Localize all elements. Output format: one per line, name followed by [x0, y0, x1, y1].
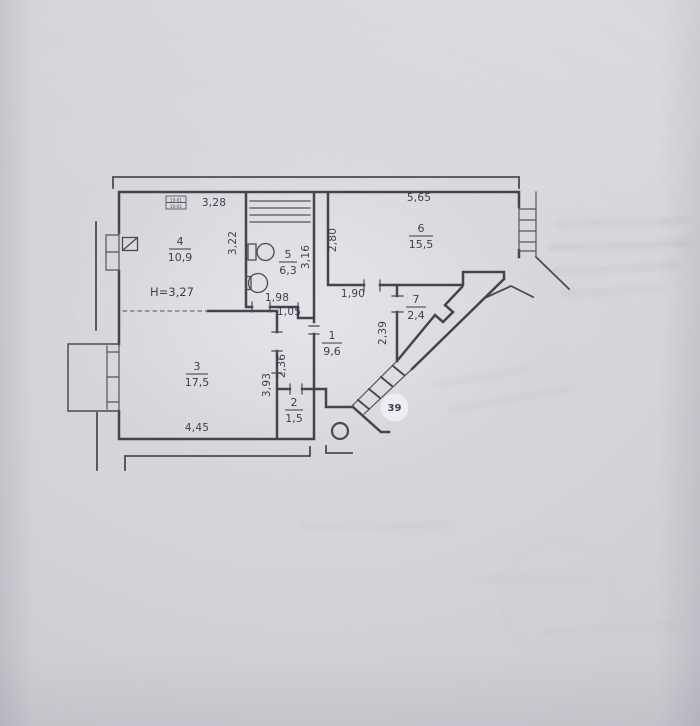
apartment-number-badge: 39 — [381, 394, 409, 422]
column-symbol — [332, 423, 348, 439]
dim-hall-left: 2,36 — [276, 354, 288, 378]
dim-bath-wall: 1,98 — [265, 292, 289, 304]
dim-room6-top: 5,65 — [407, 192, 431, 204]
room7-area: 2,4 — [407, 309, 425, 322]
dim-room7-left: 2,39 — [377, 321, 389, 345]
room4-area: 10,9 — [168, 251, 193, 264]
registry-stamp: 10-01 10-01 — [166, 196, 186, 209]
ceiling-height-note: H=3,27 — [150, 285, 194, 299]
dim-room3-bottom: 4,45 — [185, 422, 209, 434]
room2-area: 1,5 — [285, 412, 303, 425]
room2-number: 2 — [291, 396, 298, 409]
room3-number: 3 — [194, 360, 201, 373]
dim-room5-right: 3,16 — [300, 245, 312, 269]
room1-number: 1 — [329, 329, 336, 342]
room3-area: 17,5 — [185, 376, 210, 389]
dim-room3-right: 3,93 — [261, 373, 273, 397]
room5-area: 6,3 — [279, 264, 297, 277]
dim-room6-left: 2,80 — [327, 228, 339, 252]
bathroom-hatch — [250, 201, 310, 222]
dim-room4-top: 3,28 — [202, 197, 226, 209]
sink-symbol — [248, 244, 274, 261]
floor-plan-drawing: 10-01 10-01 4 10,9 5 6,3 6 15,5 7 2,4 1 … — [0, 0, 700, 726]
room4-number: 4 — [177, 235, 184, 248]
apartment-walls — [119, 192, 519, 439]
dim-room4-right: 3,22 — [227, 231, 239, 255]
toilet-symbol — [246, 274, 268, 293]
window-lines — [106, 192, 536, 414]
stamp-line-2: 10-01 — [170, 204, 183, 209]
room6-number: 6 — [418, 222, 425, 235]
room5-number: 5 — [285, 248, 292, 261]
dim-room6-door-wall: 1,90 — [341, 288, 365, 300]
room1-area: 9,6 — [323, 345, 341, 358]
room7-number: 7 — [413, 293, 420, 306]
room6-area: 15,5 — [409, 238, 434, 251]
photographed-floor-plan-page: { "plan": { "apartment_number": "39", "c… — [0, 0, 700, 726]
stamp-line-1: 10-01 — [170, 197, 183, 202]
ventilation-shaft-symbol — [123, 238, 138, 251]
apartment-number: 39 — [388, 403, 402, 414]
dim-bath-stub: 1,05 — [277, 306, 301, 318]
